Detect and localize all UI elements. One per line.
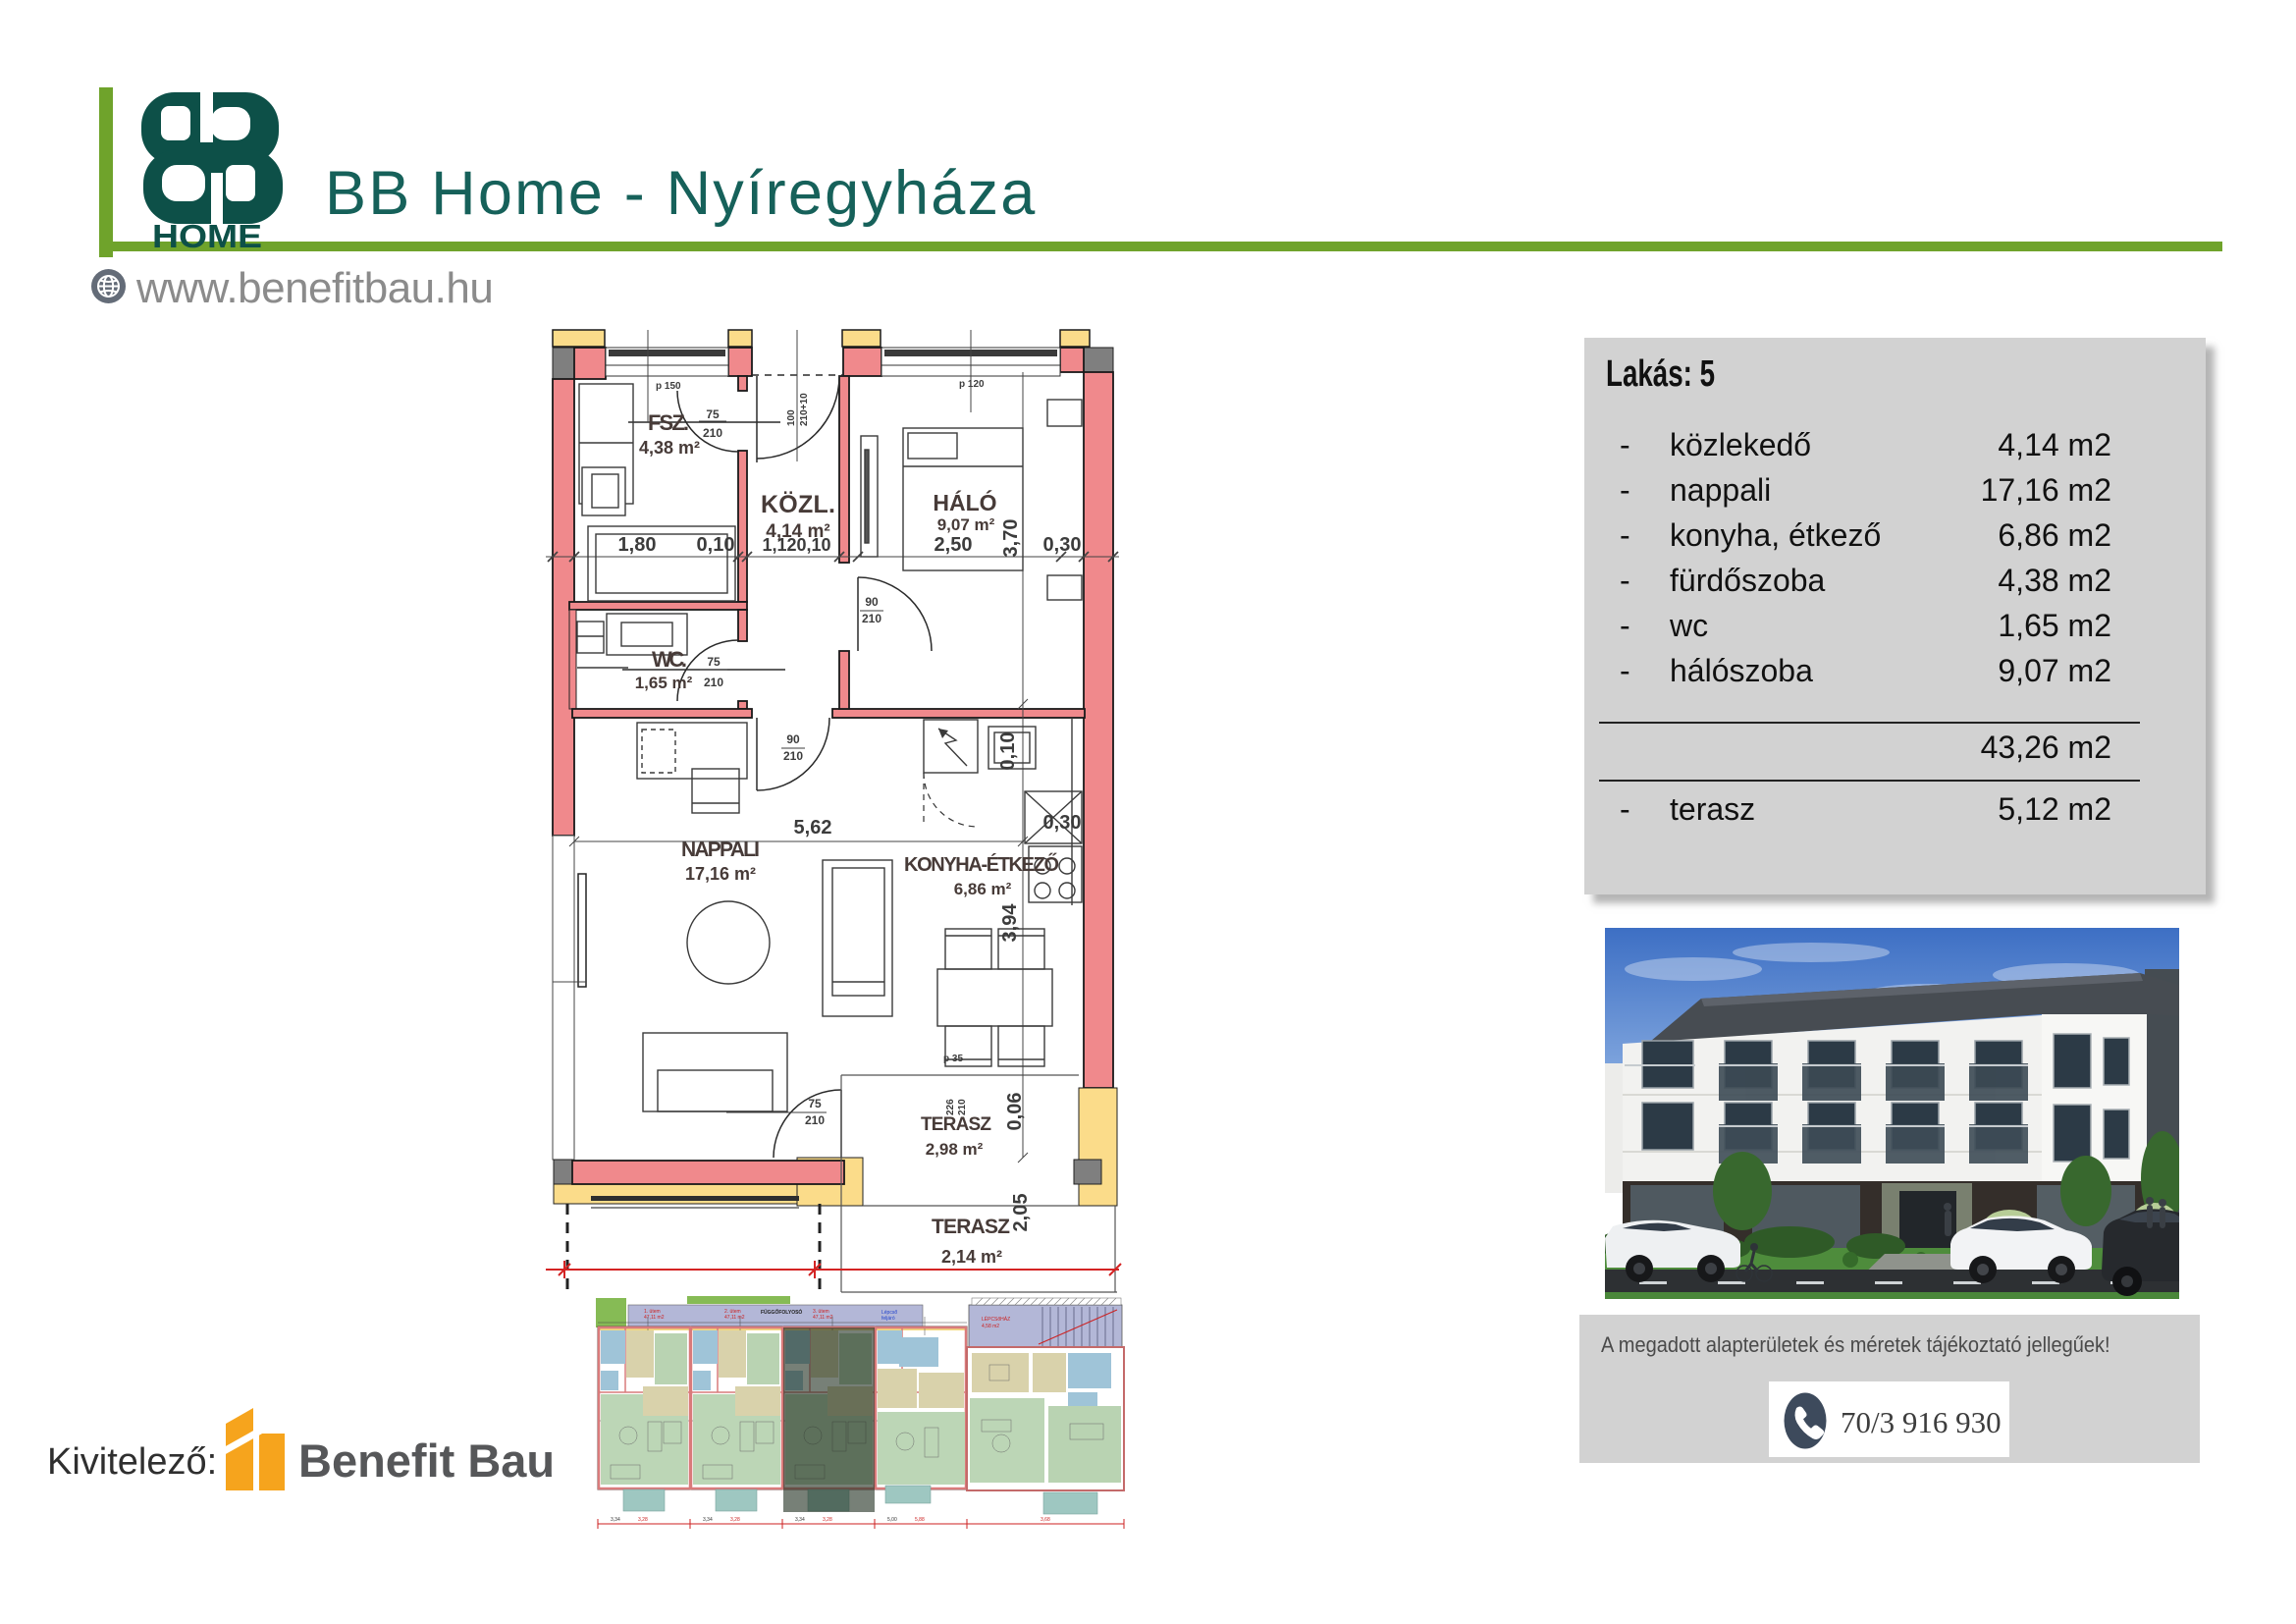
svg-text:3,68: 3,68 xyxy=(1041,1517,1050,1523)
svg-text:2,98 m²: 2,98 m² xyxy=(926,1140,984,1159)
svg-text:5,00: 5,00 xyxy=(887,1517,897,1523)
svg-text:17,16 m²: 17,16 m² xyxy=(685,864,756,884)
svg-text:2,14 m²: 2,14 m² xyxy=(941,1247,1002,1267)
svg-text:5,88: 5,88 xyxy=(915,1517,925,1523)
svg-text:TERASZ: TERASZ xyxy=(932,1216,1010,1238)
svg-text:p 120: p 120 xyxy=(959,379,985,390)
svg-text:100: 100 xyxy=(786,409,797,426)
svg-text:75: 75 xyxy=(707,655,721,669)
svg-text:3,28: 3,28 xyxy=(638,1517,648,1523)
svg-text:210: 210 xyxy=(862,612,881,625)
svg-text:47,11 m2: 47,11 m2 xyxy=(644,1315,665,1321)
svg-text:210: 210 xyxy=(957,1099,968,1115)
svg-text:FÜGGŐFOLYOSÓ: FÜGGŐFOLYOSÓ xyxy=(761,1308,802,1316)
svg-text:0,30: 0,30 xyxy=(1043,534,1082,556)
svg-text:6,86 m²: 6,86 m² xyxy=(954,880,1012,898)
svg-text:4,38 m²: 4,38 m² xyxy=(639,438,700,458)
svg-text:47,11 m2: 47,11 m2 xyxy=(813,1315,833,1321)
svg-text:KÖZL.: KÖZL. xyxy=(761,490,835,518)
svg-text:feljáró: feljáró xyxy=(881,1316,895,1322)
svg-text:3,34: 3,34 xyxy=(795,1517,805,1523)
svg-text:75: 75 xyxy=(808,1097,822,1110)
svg-text:1,80: 1,80 xyxy=(618,534,657,556)
svg-text:4,14 m²: 4,14 m² xyxy=(766,521,829,542)
svg-text:1,65 m²: 1,65 m² xyxy=(635,674,693,692)
svg-text:HOME: HOME xyxy=(152,218,262,252)
svg-text:3,28: 3,28 xyxy=(823,1517,832,1523)
svg-text:2,05: 2,05 xyxy=(1010,1194,1032,1232)
svg-text:5,62: 5,62 xyxy=(794,817,832,839)
svg-text:9,07 m²: 9,07 m² xyxy=(937,515,995,534)
svg-text:NAPPALI: NAPPALI xyxy=(681,839,760,861)
svg-text:210: 210 xyxy=(783,749,803,763)
svg-text:75: 75 xyxy=(706,407,720,421)
svg-text:FSZ.: FSZ. xyxy=(648,410,689,435)
svg-text:p 150: p 150 xyxy=(656,381,681,392)
svg-text:2,50: 2,50 xyxy=(934,534,973,556)
svg-text:210: 210 xyxy=(704,676,723,689)
svg-text:3,34: 3,34 xyxy=(703,1517,713,1523)
svg-text:0,30: 0,30 xyxy=(1043,812,1082,834)
svg-text:LÉPCSőHÁZ: LÉPCSőHÁZ xyxy=(982,1316,1010,1323)
svg-text:TERASZ: TERASZ xyxy=(921,1114,991,1135)
svg-text:210+10: 210+10 xyxy=(799,393,810,426)
svg-text:KONYHA-ÉTKEZŐ: KONYHA-ÉTKEZŐ xyxy=(904,853,1059,876)
svg-text:3,28: 3,28 xyxy=(730,1517,740,1523)
svg-text:3,70: 3,70 xyxy=(1000,519,1022,558)
svg-text:90: 90 xyxy=(865,595,879,609)
svg-text:90: 90 xyxy=(786,732,800,746)
svg-text:47,11 m2: 47,11 m2 xyxy=(724,1315,745,1321)
svg-text:210: 210 xyxy=(805,1113,825,1127)
svg-text:HÁLÓ: HÁLÓ xyxy=(933,489,996,515)
svg-text:WC.: WC. xyxy=(652,647,687,672)
svg-text:210: 210 xyxy=(703,426,722,440)
svg-text:0,10: 0,10 xyxy=(997,732,1019,771)
svg-text:3,34: 3,34 xyxy=(611,1517,620,1523)
svg-text:0,06: 0,06 xyxy=(1004,1093,1026,1131)
svg-text:4,58 m2: 4,58 m2 xyxy=(982,1324,999,1329)
svg-text:226: 226 xyxy=(945,1099,956,1115)
svg-text:0,10: 0,10 xyxy=(697,534,735,556)
